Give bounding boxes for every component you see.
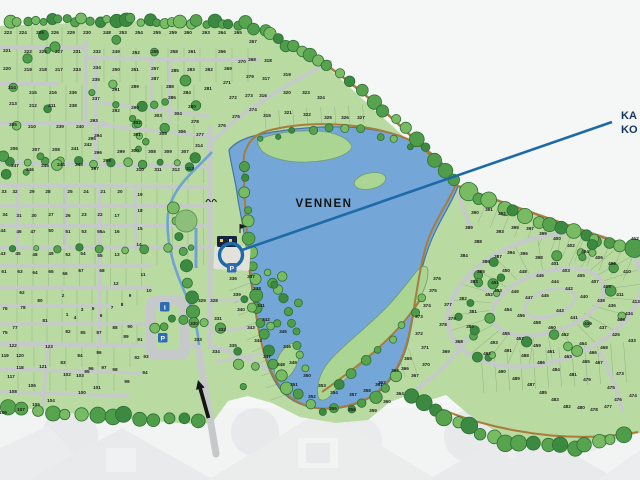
plot-number: 122 [9, 343, 17, 348]
plot-number: 448 [519, 269, 527, 274]
plot-number: 78 [20, 305, 26, 310]
plot-number: 369 [442, 349, 450, 354]
plot-number: 341 [257, 303, 265, 308]
plot-number: 247 [11, 163, 19, 168]
plot-number: 84 [77, 353, 83, 358]
building-window [229, 239, 232, 242]
plot-number: 311 [154, 167, 162, 172]
plot-number: 274 [249, 107, 257, 112]
plot-number: 305 [159, 131, 167, 136]
plot-number: 357 [349, 392, 357, 397]
plot-number: 307 [181, 149, 189, 154]
plot-number: 109 [0, 410, 7, 415]
plot-number: 226 [39, 49, 47, 54]
plot-number: 356 [348, 407, 356, 412]
plot-number: 1 [66, 312, 69, 317]
plot-number: 352 [308, 394, 316, 399]
plot-number: 490 [498, 369, 506, 374]
plot-number: 335 [229, 343, 237, 348]
plot-number: 280 [188, 104, 196, 109]
plot-number: 19 [137, 192, 143, 197]
callout-label-line1: KA [621, 110, 637, 122]
plot-number: 12 [113, 281, 119, 286]
plot-number: 2 [62, 293, 65, 298]
plot-number: 51 [65, 229, 71, 234]
plot-number: 365 [404, 356, 412, 361]
plot-number: 221 [3, 48, 11, 53]
plot-number: 323 [302, 90, 310, 95]
plot-number: 328 [210, 298, 218, 303]
plot-number: 474 [629, 393, 637, 398]
plot-number: 412 [631, 236, 639, 241]
plot-number: 81 [42, 318, 48, 323]
plot-number: 382 [459, 296, 467, 301]
plot-number: 29 [29, 189, 35, 194]
plot-number: 476 [614, 397, 622, 402]
plot-number: 8 [121, 302, 124, 307]
plot-number: 308 [148, 149, 156, 154]
plot-number: 391 [485, 207, 493, 212]
plot-number: 273 [245, 93, 253, 98]
plot-number: 85 [80, 330, 86, 335]
plot-number: 327 [357, 115, 365, 120]
plot-number: 410 [623, 269, 631, 274]
plot-number: 406 [595, 255, 603, 260]
plot-number: 433 [628, 338, 636, 343]
plot-number: 207 [32, 147, 40, 152]
plot-number: 397 [526, 226, 534, 231]
plot-number: 212 [29, 103, 37, 108]
plot-number: 366 [401, 366, 409, 371]
plot-number: 377 [444, 302, 452, 307]
plot-number: 210 [28, 124, 36, 129]
plot-number: 117 [7, 374, 15, 379]
plot-number: 353 [318, 383, 326, 388]
plot-number: 93 [143, 354, 149, 359]
plot-number: 348 [277, 362, 285, 367]
building-window [220, 239, 223, 242]
plot-number: 243 [75, 162, 83, 167]
plot-number: 99 [124, 379, 130, 384]
plot-number: 475 [607, 385, 615, 390]
plot-number: 82 [65, 329, 71, 334]
plot-number: 326 [341, 115, 349, 120]
plot-number: 455 [502, 331, 510, 336]
plot-number: 440 [580, 294, 588, 299]
plot-number: 383 [470, 279, 478, 284]
plot-number: 293 [90, 118, 98, 123]
plot-number: 376 [433, 276, 441, 281]
plot-number: 336 [229, 276, 237, 281]
plot-number: 31 [16, 213, 22, 218]
plot-number: 453 [494, 288, 502, 293]
plot-number: 245 [41, 163, 49, 168]
plot-number: 230 [83, 30, 91, 35]
plot-number: 438 [597, 298, 605, 303]
plot-number: 436 [608, 303, 616, 308]
plot-number: 309 [164, 149, 172, 154]
plot-number: 258 [170, 49, 178, 54]
plot-number: 371 [421, 345, 429, 350]
plot-number: 425 [612, 332, 620, 337]
plot-number: 482 [563, 404, 571, 409]
plot-number: 211 [48, 103, 56, 108]
plot-number: 339 [233, 292, 241, 297]
plot-number: 282 [205, 67, 213, 72]
plot-number: 52 [65, 252, 71, 257]
plot-number: 206 [10, 146, 18, 151]
plot-number: 403 [562, 268, 570, 273]
plot-number: 409 [603, 284, 611, 289]
plot-number: 313 [186, 166, 194, 171]
plot-number: 32 [12, 189, 18, 194]
plot-number: 379 [448, 316, 456, 321]
plot-number: 47 [30, 229, 36, 234]
park-map: 2232242252262292302482532542552592602632… [0, 0, 640, 480]
plot-number: 312 [172, 167, 180, 172]
plot-number: 325 [324, 115, 332, 120]
plot-number: 340 [237, 307, 245, 312]
plot-number: 306 [178, 129, 186, 134]
plot-number: 407 [591, 279, 599, 284]
plot-number: 14 [136, 242, 142, 247]
plot-number: 238 [69, 103, 77, 108]
plot-number: 300 [131, 148, 139, 153]
plot-number: 119 [1, 353, 9, 358]
plot-number: 77 [12, 325, 18, 330]
plot-number: 346 [283, 344, 291, 349]
plot-number: 97 [101, 365, 107, 370]
plot-number: 457 [516, 336, 524, 341]
plot-number: 302 [133, 120, 141, 125]
plot-number: 304 [174, 111, 182, 116]
plot-number: 257 [151, 66, 159, 71]
plot-number: 217 [55, 67, 63, 72]
plot-number: 394 [507, 250, 515, 255]
plot-number: 17 [114, 213, 120, 218]
plot-number: 234 [93, 65, 101, 70]
callout-label-line2: KO [621, 124, 638, 136]
plot-number: 380 [466, 324, 474, 329]
plot-number: 16 [114, 229, 120, 234]
plot-number: 91 [137, 337, 143, 342]
plot-number: 378 [439, 322, 447, 327]
plot-number: 5 [92, 306, 95, 311]
plot-number: 11 [141, 272, 146, 277]
plot-number: 314 [195, 143, 203, 148]
plot-number: 487 [527, 382, 535, 387]
plot-number: 259 [169, 30, 177, 35]
plot-number: 464 [579, 341, 587, 346]
plot-number: 220 [3, 66, 11, 71]
plot-number: 123 [45, 344, 53, 349]
plot-number: 332 [218, 327, 226, 332]
plot-number: 316 [259, 93, 267, 98]
plot-number: 320 [283, 90, 291, 95]
plot-number: 265 [234, 30, 242, 35]
plot-number: 484 [552, 367, 560, 372]
plot-number: 283 [187, 67, 195, 72]
plot-number: 89 [123, 334, 129, 339]
plot-number: 483 [551, 397, 559, 402]
plot-number: 364 [396, 391, 404, 396]
plot-number: 318 [264, 58, 272, 63]
plot-number: 9 [129, 293, 132, 298]
plot-number: 435 [617, 317, 625, 322]
plot-number: 4 [74, 315, 77, 320]
plot-number: 252 [132, 50, 140, 55]
plot-number: 291 [112, 87, 120, 92]
parking-icon-2: P [158, 333, 168, 343]
plot-number: 488 [521, 353, 529, 358]
plot-number: 7 [111, 305, 114, 310]
plot-number: 108 [9, 389, 17, 394]
plot-number: 23 [81, 212, 87, 217]
plot-number: 232 [93, 49, 101, 54]
plot-number: 236 [69, 90, 77, 95]
plot-number: 49 [48, 251, 54, 256]
plot-number: 61 [1, 269, 7, 274]
plot-number: 255 [153, 30, 161, 35]
plot-number: 295 [88, 136, 96, 141]
plot-number: 27 [48, 212, 54, 217]
plot-number: 401 [551, 261, 559, 266]
plot-number: 205 [9, 122, 17, 127]
plot-number: 298 [103, 158, 111, 163]
plot-number: 321 [284, 110, 292, 115]
plot-number: 350 [303, 373, 311, 378]
plot-number: 375 [429, 288, 437, 293]
plot-number: 21 [100, 189, 106, 194]
parking-icon-label: P [230, 266, 235, 273]
plot-number: 225 [36, 30, 44, 35]
plot-number: 477 [604, 404, 612, 409]
plot-number: 458 [533, 320, 541, 325]
plot-number: 360 [383, 399, 391, 404]
plot-number: 473 [616, 371, 624, 376]
plot-number: 370 [422, 362, 430, 367]
plot-number: 392 [498, 211, 506, 216]
plot-number: 248 [103, 30, 111, 35]
plot-number: 118 [16, 365, 24, 370]
lake-label: VENNEN [296, 198, 353, 210]
plot-number: 355 [329, 406, 337, 411]
plot-number: 214 [8, 85, 16, 90]
plot-number: 299 [117, 149, 125, 154]
plot-number: 342 [262, 317, 270, 322]
plot-number: 337 [247, 274, 255, 279]
plot-number: 381 [469, 309, 477, 314]
plot-number: 439 [584, 321, 592, 326]
parking-icon: P [227, 263, 237, 273]
plot-number: 388 [474, 239, 482, 244]
plot-number: 215 [29, 90, 37, 95]
plot-number: 387 [494, 254, 502, 259]
plot-number: 319 [283, 72, 291, 77]
plot-number: 286 [168, 95, 176, 100]
plot-number: 492 [483, 351, 491, 356]
plot-number: 231 [73, 49, 81, 54]
plot-number: 106 [28, 383, 36, 388]
plot-number: 303 [154, 113, 162, 118]
plot-number: 33 [1, 189, 7, 194]
plot-number: 261 [188, 49, 196, 54]
plot-number: 398 [535, 255, 543, 260]
plot-number: 67 [78, 268, 84, 273]
plot-number: 54 [80, 251, 86, 256]
plot-number: 452 [485, 292, 493, 297]
plot-number: 240 [76, 124, 84, 129]
plot-number: 22 [97, 212, 103, 217]
plot-number: 68 [99, 268, 105, 273]
plot-number: 296 [94, 150, 102, 155]
plot-number: 239 [56, 124, 64, 129]
plot-number: 104 [47, 398, 55, 403]
plot-number: 250 [112, 67, 120, 72]
plot-number: 301 [133, 132, 141, 137]
plot-number: 460 [548, 325, 556, 330]
plot-number: 260 [184, 30, 192, 35]
map-image: 2232242252262292302482532542552592602632… [0, 0, 640, 480]
plot-number: 218 [39, 67, 47, 72]
plot-number: 256 [151, 49, 159, 54]
plot-number: 347 [263, 354, 271, 359]
plot-number: 10 [146, 288, 152, 293]
plot-number: 229 [67, 30, 75, 35]
plot-number: 244 [57, 162, 65, 167]
plot-number: 272 [229, 95, 237, 100]
plot-number: 367 [411, 373, 419, 378]
plot-number: 267 [249, 39, 257, 44]
plot-number: 297 [91, 166, 99, 171]
plot-number: 385 [477, 269, 485, 274]
plot-number: 94 [142, 370, 148, 375]
plot-number: 26 [65, 213, 71, 218]
plot-number: 441 [570, 315, 578, 320]
plot-number: 480 [577, 405, 585, 410]
plot-number: 324 [317, 95, 325, 100]
plot-number: 442 [565, 286, 573, 291]
plot-number: 46 [16, 229, 22, 234]
plot-number: 269 [224, 66, 232, 71]
plot-number: 404 [581, 249, 589, 254]
plot-number: 434 [625, 311, 633, 316]
plot-number: 246 [26, 167, 34, 172]
plot-number: 45 [15, 251, 21, 256]
plot-number: 462 [561, 332, 569, 337]
plot-number: 330 [190, 321, 198, 326]
plot-number: 208 [52, 147, 60, 152]
plot-number: 345 [279, 329, 287, 334]
plot-number: 402 [567, 243, 575, 248]
plot-number: 459 [533, 343, 541, 348]
plot-number: 264 [218, 30, 226, 35]
plot-number: 102 [63, 372, 71, 377]
plot-number: 486 [537, 360, 545, 365]
plot-number: 290 [131, 105, 139, 110]
plot-number: 461 [547, 349, 555, 354]
parking-icon-2-label: P [161, 336, 166, 343]
plot-number: 25 [67, 189, 73, 194]
info-icon-label: i [164, 305, 166, 312]
plot-number: 449 [511, 289, 519, 294]
plot-number: 249 [112, 49, 120, 54]
plot-number: 90 [127, 324, 133, 329]
plot-number: 107 [17, 407, 25, 412]
plot-number: 281 [204, 86, 212, 91]
plot-number: 28 [45, 189, 51, 194]
plot-number: 88 [112, 325, 118, 330]
plot-number: 447 [525, 295, 533, 300]
plot-number: 263 [202, 30, 210, 35]
plot-number: 105 [32, 402, 40, 407]
plot-number: 270 [238, 59, 246, 64]
plot-number: 478 [590, 407, 598, 412]
plot-number: 393 [496, 229, 504, 234]
info-icon: i [160, 302, 170, 312]
plot-number: 389 [465, 225, 473, 230]
plot-number: 101 [93, 385, 101, 390]
plot-number: 53 [81, 229, 87, 234]
plot-number: 374 [423, 303, 431, 308]
plot-number: 43 [0, 251, 6, 256]
plot-number: 226 [51, 30, 59, 35]
plot-number: 275 [232, 114, 240, 119]
plot-number: 437 [599, 325, 607, 330]
plot-number: 386 [482, 259, 490, 264]
plot-number: 329 [198, 298, 206, 303]
plot-number: 227 [55, 49, 63, 54]
plot-number: 233 [73, 67, 81, 72]
plot-number: 396 [520, 251, 528, 256]
plot-number: 237 [92, 96, 100, 101]
plot-number: 373 [415, 314, 423, 319]
plot-number: 64 [32, 270, 38, 275]
plot-number: 278 [191, 119, 199, 124]
plot-number: 468 [600, 345, 608, 350]
plot-number: 87 [96, 330, 102, 335]
plot-number: 444 [551, 279, 559, 284]
plot-number: 271 [223, 80, 231, 85]
plot-number: 390 [471, 210, 479, 215]
plot-number: 242 [84, 142, 92, 147]
plot-number: 100 [78, 390, 86, 395]
plot-number: 20 [117, 189, 123, 194]
plot-number: 241 [71, 146, 79, 151]
plot-number: 362 [378, 380, 386, 385]
plot-number: 254 [135, 30, 143, 35]
plot-number: 266 [218, 49, 226, 54]
plot-number: 450 [502, 268, 510, 273]
plot-number: 463 [564, 354, 572, 359]
plot-number: 83 [60, 360, 66, 365]
plot-number: 331 [214, 316, 222, 321]
plot-number: 66 [62, 271, 68, 276]
plot-number: 322 [303, 112, 311, 117]
plot-number: 400 [553, 236, 561, 241]
plot-number: 351 [290, 382, 298, 387]
plot-number: 445 [541, 293, 549, 298]
plot-number: 344 [254, 338, 262, 343]
plot-number: 456 [517, 313, 525, 318]
plot-number: 219 [24, 67, 32, 72]
plot-number: 289 [131, 84, 139, 89]
plot-number: 235 [92, 77, 100, 82]
plot-number: 75 [2, 330, 8, 335]
plot-number: 251 [131, 67, 139, 72]
plot-number: 44 [0, 228, 6, 233]
plot-number: 485 [539, 390, 547, 395]
